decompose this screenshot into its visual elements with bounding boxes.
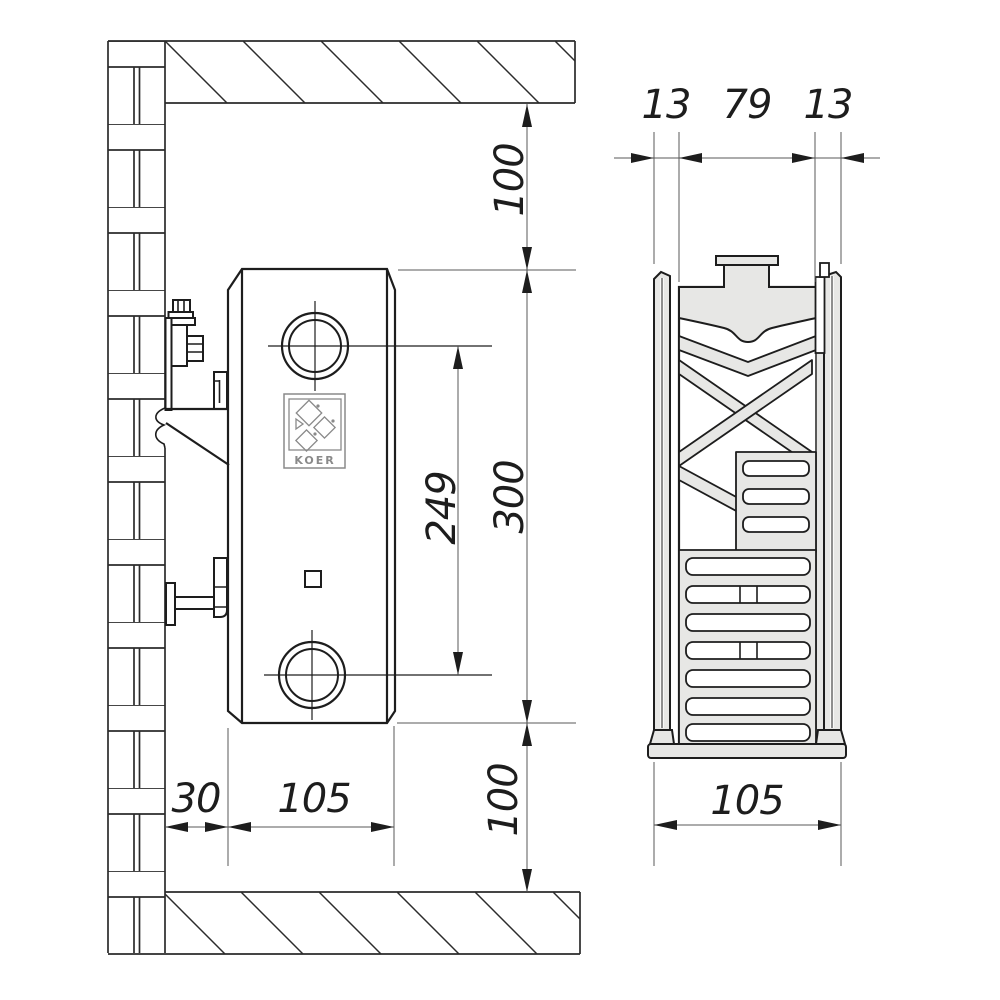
radiator-mounting-drawing: KOER [0,0,1000,1000]
logo-dot-2 [331,419,334,422]
section-base-plate [648,744,846,758]
pipe-stub-body [724,265,769,288]
arrowhead [165,822,188,832]
fin-slot [686,670,810,687]
mounting-plate [816,277,825,353]
pipe-stub-flange [716,256,778,265]
radiator-section-view [648,256,846,758]
fin-slot [686,724,810,741]
dim-section-depth: 105 [710,778,783,824]
floor-hatch [165,892,580,954]
arrowhead [522,104,532,127]
arrowhead [631,153,654,163]
fin-slot [686,614,810,631]
upper-bolt-head [173,300,190,312]
dim-front-panel: 13 [642,82,691,128]
arrowhead [228,822,251,832]
dim-port-spacing: 249 [419,471,465,544]
arrowhead [792,153,815,163]
arrowhead [522,247,532,270]
arrowhead [371,822,394,832]
logo-wordmark: KOER [294,454,335,467]
fin-slot [743,489,809,504]
dim-top-clearance: 100 [487,143,533,216]
arrowhead [453,346,463,369]
fin-slot [686,642,810,659]
dim-front-depth: 105 [277,776,350,822]
fin-slot [686,558,810,575]
arrowhead [818,820,841,830]
section-left-foot [650,730,674,744]
lower-bolt-flange [166,583,175,625]
dim-core: 79 [723,82,772,128]
arrowhead [522,723,532,746]
dim-height: 300 [487,460,533,533]
lower-wall-bracket [166,558,227,625]
logo-dot-3 [313,432,316,435]
brick-wall [108,41,165,953]
arrowhead [205,822,228,832]
fin-slot [686,698,810,715]
fin-slot [743,461,809,476]
arrowhead [841,153,864,163]
bracket-body-block [172,325,188,366]
fin-slot [743,517,809,532]
lower-bolt-shaft [175,597,215,609]
dim-wall-offset: 30 [172,776,221,822]
arrowhead [453,652,463,675]
section-right-foot [816,730,845,744]
upper-wall-bracket [166,300,230,465]
dim-back-panel: 13 [804,82,853,128]
bracket-diagonal-support [166,423,229,465]
mounting-tab [820,263,829,277]
bracket-hook [214,372,227,409]
arrowhead [679,153,702,163]
logo-dot-1 [316,404,319,407]
ceiling [108,41,575,103]
arrowhead [522,700,532,723]
adjuster-nut [187,336,203,361]
koer-logo: KOER [284,394,345,468]
arrowhead [522,270,532,293]
fin-slot [686,586,810,603]
bracket-top-arm [172,318,196,325]
arrowhead [522,869,532,892]
arrowhead [654,820,677,830]
floor [108,892,580,954]
brick-pattern-area [108,41,165,953]
ceiling-hatch [165,41,575,103]
vent-square-hole [305,571,321,587]
dim-bottom-clearance: 100 [481,763,527,836]
